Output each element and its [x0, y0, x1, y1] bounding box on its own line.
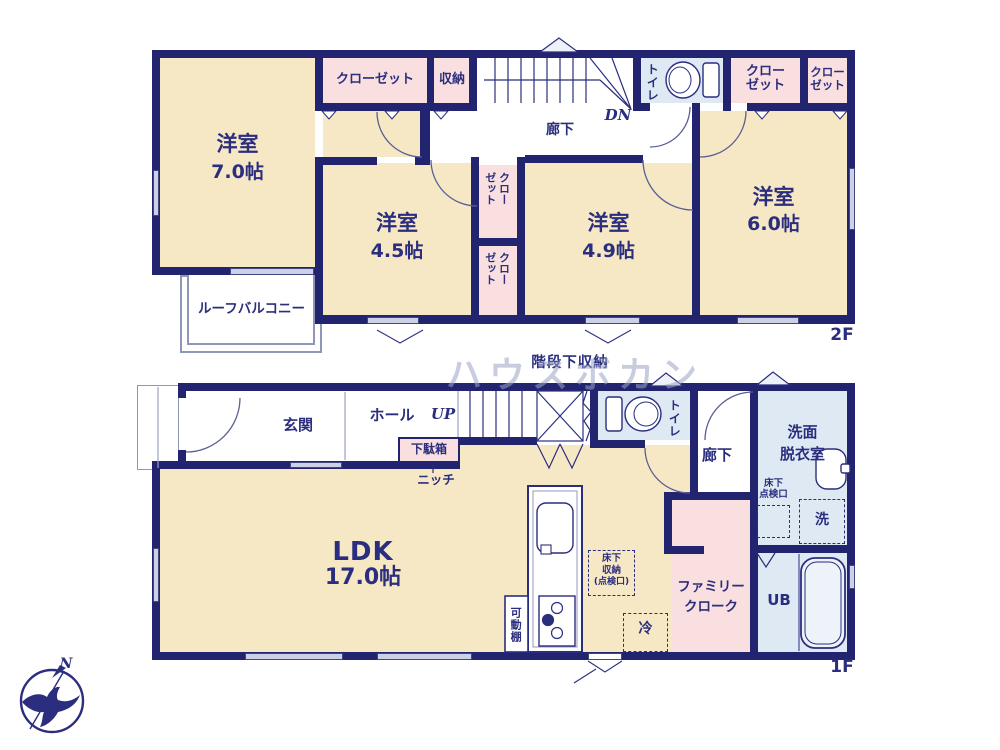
wall — [455, 437, 537, 445]
kitchen-hatch-label-1: 床下 — [589, 554, 634, 564]
floor-hatch-label-1: 床下 — [751, 479, 796, 489]
closet-2f-mid-a-label: クロー ゼット — [483, 172, 511, 234]
room-7-name: 洋室 — [160, 133, 315, 156]
closet-line: クロー — [746, 64, 785, 79]
wall — [471, 238, 525, 246]
toilet-2f-label: トイレ — [645, 61, 658, 103]
wall — [315, 157, 323, 275]
room-49-name: 洋室 — [525, 212, 692, 235]
entrance-porch — [137, 385, 179, 470]
closet-2f-mid-b-label: クロー ゼット — [483, 252, 511, 314]
niche-label: ニッチ — [408, 473, 464, 487]
wall — [590, 440, 645, 448]
genkan-label: 玄関 — [258, 417, 338, 434]
closet-line: ゼット — [483, 252, 497, 314]
wall — [664, 492, 758, 500]
watermark: ハウスボカン — [425, 346, 725, 398]
wall — [315, 50, 323, 111]
wall — [633, 50, 641, 111]
floor-1f-label: 1F — [824, 658, 860, 677]
up-label: UP — [428, 406, 458, 423]
window — [588, 653, 622, 660]
closet-line: クロー — [497, 252, 511, 314]
room-2f-west-49 — [525, 163, 692, 315]
ub-label: UB — [758, 592, 800, 609]
wall — [723, 50, 731, 111]
closet-line: クロー — [497, 172, 511, 234]
window — [737, 317, 799, 324]
window — [367, 317, 419, 324]
compass-bird — [22, 687, 80, 727]
wall — [690, 383, 698, 500]
floor-2f-label: 2F — [824, 326, 860, 345]
family-cloak-label-2: クローク — [672, 600, 750, 615]
room-45-size: 4.5帖 — [323, 241, 471, 262]
hallway-2f-label: 廊下 — [530, 123, 590, 138]
wall — [315, 103, 475, 111]
washroom-label-2: 脱衣室 — [758, 446, 847, 463]
window — [849, 565, 855, 589]
stairs-2f — [484, 58, 631, 109]
closet-line: ゼット — [746, 78, 785, 93]
washroom-label-1: 洗面 — [758, 424, 847, 441]
floor-plan: 洋室 7.0帖 クローゼット 収納 トイレ 廊下 DN クロー ゼット クロー … — [0, 0, 1000, 750]
wall — [152, 50, 855, 58]
room-7-size: 7.0帖 — [160, 162, 315, 183]
room-45-name: 洋室 — [323, 212, 471, 235]
closet-2f-top-label: クローゼット — [323, 73, 427, 87]
getabako-label: 下駄箱 — [400, 443, 458, 456]
room-2f-west-7-strip — [323, 111, 420, 157]
closet-2f-right-b-label: クロー ゼット — [806, 66, 849, 91]
room-6-name: 洋室 — [700, 186, 847, 209]
wall — [315, 157, 377, 165]
closet-line: ゼット — [810, 78, 845, 92]
window — [245, 653, 343, 660]
family-cloak-label-1: ファミリー — [672, 580, 750, 595]
family-cloak-room — [672, 500, 750, 652]
floor-hatch-label-2: 点検口 — [751, 490, 796, 500]
closet-2f-right-a-label: クロー ゼット — [731, 65, 800, 94]
wall — [178, 383, 186, 398]
wall — [847, 383, 855, 660]
ldk-name: LDK — [313, 538, 413, 567]
compass-icon — [21, 665, 83, 732]
wall — [664, 492, 672, 554]
wall — [758, 545, 847, 553]
wall — [664, 546, 704, 554]
window — [377, 653, 472, 660]
roof-balcony-label: ルーフバルコニー — [184, 302, 319, 317]
hallway-1f-label: 廊下 — [692, 447, 742, 464]
floor-hatch-box — [757, 505, 790, 538]
window — [230, 268, 314, 275]
window — [153, 170, 159, 216]
window — [290, 462, 342, 468]
room-49-size: 4.9帖 — [525, 241, 692, 262]
wall — [415, 157, 430, 165]
wall — [152, 50, 160, 275]
ldk-room-upper — [460, 445, 690, 469]
storage-2f-label: 収納 — [432, 73, 472, 87]
compass-n-label: N — [56, 657, 76, 672]
wall — [420, 103, 430, 165]
movable-shelf-label: 可動棚 — [509, 600, 521, 650]
washer-label: 洗 — [799, 513, 845, 528]
window — [849, 168, 855, 230]
window — [585, 317, 640, 324]
toilet-1f-label: トイレ — [667, 394, 680, 442]
room-6-size: 6.0帖 — [700, 214, 847, 235]
room-2f-west-45 — [323, 163, 471, 315]
dn-label: DN — [596, 107, 640, 124]
wall — [525, 155, 643, 163]
ldk-size: 17.0帖 — [303, 566, 423, 590]
closet-line: ゼット — [483, 172, 497, 234]
kitchen-hatch-label-3: (点検口) — [586, 578, 637, 588]
kitchen-hatch-label-2: 収納 — [589, 566, 634, 576]
hall-label: ホール — [360, 407, 424, 424]
window — [153, 548, 159, 602]
wall — [692, 103, 700, 324]
fridge-label: 冷 — [623, 622, 668, 637]
